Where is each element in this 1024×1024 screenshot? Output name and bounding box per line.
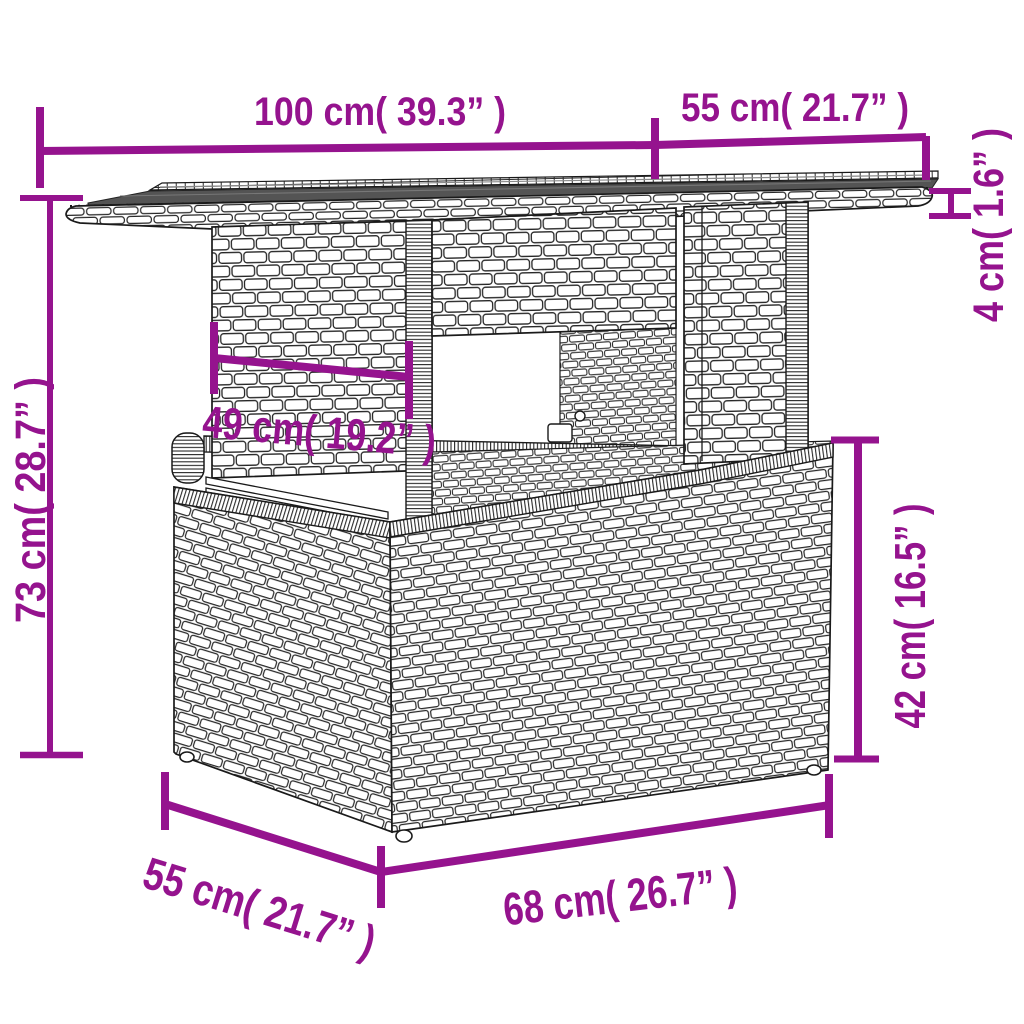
svg-text:42 cm( 16.5” ): 42 cm( 16.5” ) <box>886 504 935 729</box>
svg-text:100 cm( 39.3” ): 100 cm( 39.3” ) <box>254 90 506 134</box>
svg-text:73 cm( 28.7” ): 73 cm( 28.7” ) <box>7 377 55 623</box>
svg-text:4 cm( 1.6” ): 4 cm( 1.6” ) <box>965 128 1013 322</box>
svg-text:55 cm( 21.7” ): 55 cm( 21.7” ) <box>681 86 909 130</box>
